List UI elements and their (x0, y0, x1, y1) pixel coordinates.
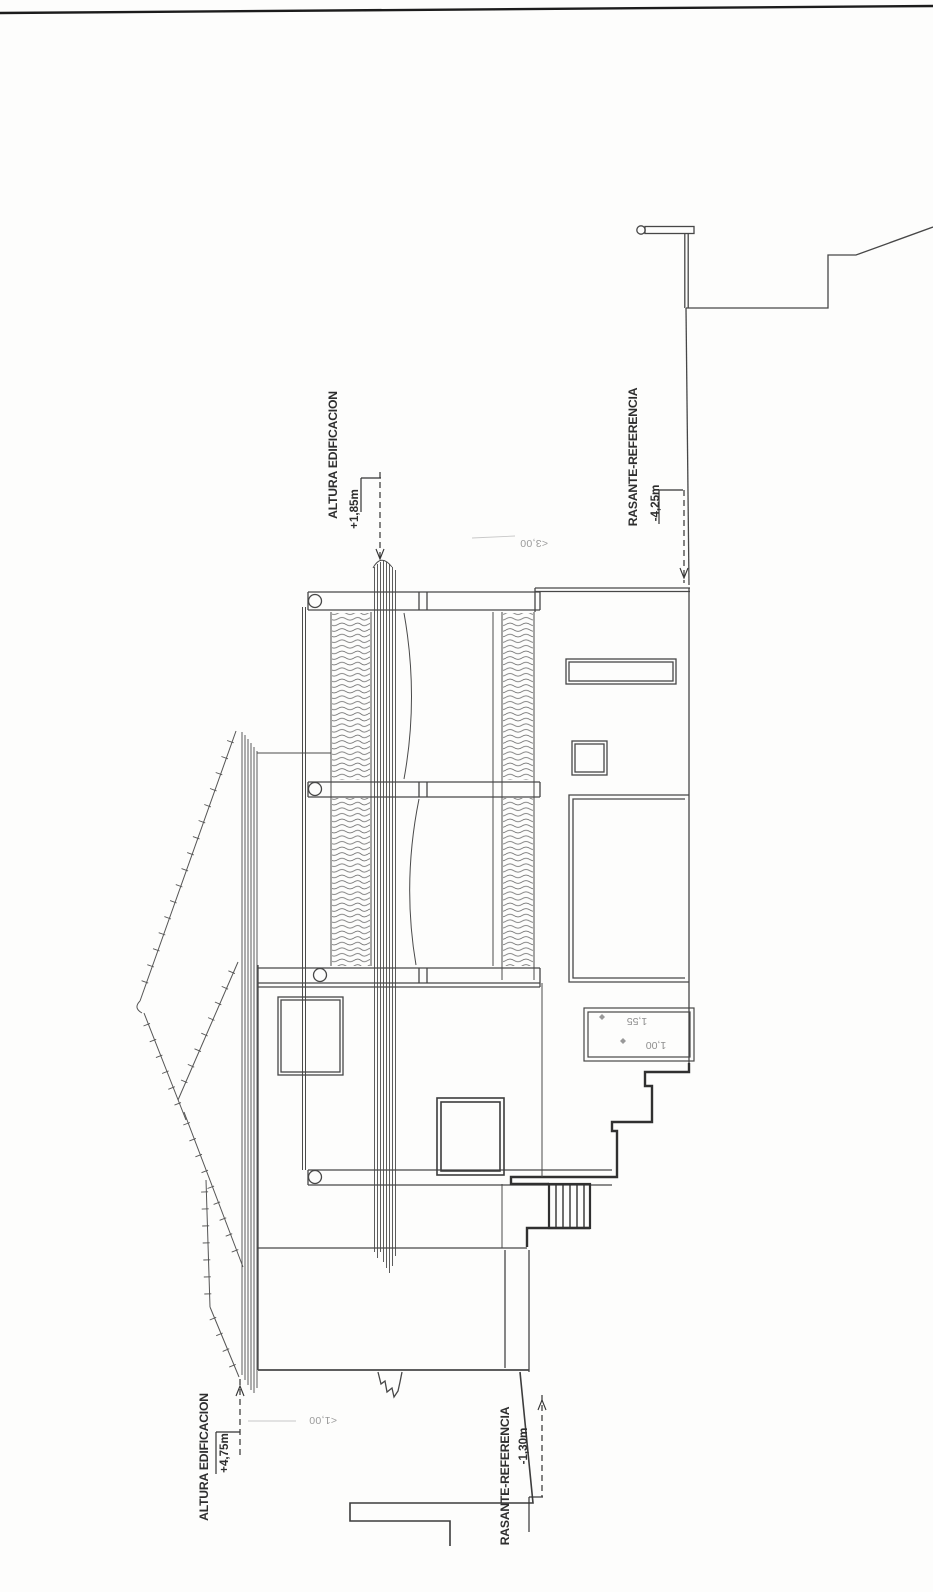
terrain-drop-line (686, 308, 689, 585)
roof-fascia-edge (242, 732, 331, 1393)
footing-steps (511, 1063, 689, 1247)
window-large (569, 795, 689, 982)
fence-post-cap (637, 226, 645, 234)
altura-bottom-label: ALTURA EDIFICACION (197, 1393, 211, 1521)
post-cap-circle (314, 969, 327, 982)
hatched-wall-left (331, 612, 371, 966)
sheet-border-line (0, 6, 933, 13)
leader-rasante-top (659, 490, 688, 583)
roof-slope (210, 1307, 239, 1377)
post-cap-circle (309, 595, 322, 608)
terrain-profile-right (637, 226, 933, 585)
rasante-top-label: RASANTE-REFERENCIA (626, 387, 640, 526)
break-mark (378, 1372, 402, 1397)
basement-level (257, 965, 529, 1397)
porch-edges (502, 983, 542, 1248)
window-lower-mid (437, 1098, 504, 1175)
pool-dim-a: 1,55 (627, 1015, 648, 1027)
roof-slope (206, 1180, 210, 1307)
elevation-drawing: 1,55 1,00 (0, 0, 933, 1592)
fence-rail (645, 227, 694, 234)
rasante-bottom-label: RASANTE-REFERENCIA (498, 1406, 512, 1545)
floor-beams (258, 592, 612, 1185)
hatched-wall-right (502, 612, 534, 980)
inner-wall-and-vaults (404, 612, 493, 966)
gutter-curl (137, 1001, 142, 1013)
window-lower-left (278, 997, 343, 1075)
rasante-top-value: -4,25m (649, 485, 662, 522)
post-cap-circle (309, 783, 322, 796)
altura-top-value: +1,85m (348, 489, 361, 529)
leader-rasante-bottom (529, 1395, 546, 1532)
balcony-railing (303, 607, 306, 1170)
post-cap-circle (309, 1171, 322, 1184)
rasante-bottom-value: -1,30m (517, 1428, 530, 1465)
ground-profile-upper (686, 227, 933, 308)
window-small (572, 741, 607, 775)
altura-bottom-value: +4,75m (218, 1433, 231, 1473)
upper-roof (137, 731, 243, 1377)
pool-dim-b: 1,00 (646, 1039, 667, 1051)
scanned-elevation-sheet: 1,55 1,00 (0, 0, 933, 1592)
exterior-stairs (549, 1184, 590, 1228)
window-slot (566, 659, 676, 684)
roof-slope (144, 1013, 186, 1120)
pool-dimension-marks (599, 1014, 626, 1044)
dim-upper-span: <3,00 (520, 537, 548, 549)
roof-slope (178, 962, 238, 1100)
vault-arc (410, 799, 419, 965)
roof-slope (140, 731, 236, 1001)
right-building-block (535, 588, 690, 1063)
dim-line-upper (472, 536, 515, 538)
altura-top-label: ALTURA EDIFICACION (326, 391, 340, 519)
dim-lower-span: <1,00 (309, 1414, 337, 1426)
roof-slope (184, 1112, 243, 1267)
chimney-section-lines (373, 560, 396, 1273)
leader-altura-top (361, 472, 384, 561)
vault-arc (404, 613, 412, 779)
